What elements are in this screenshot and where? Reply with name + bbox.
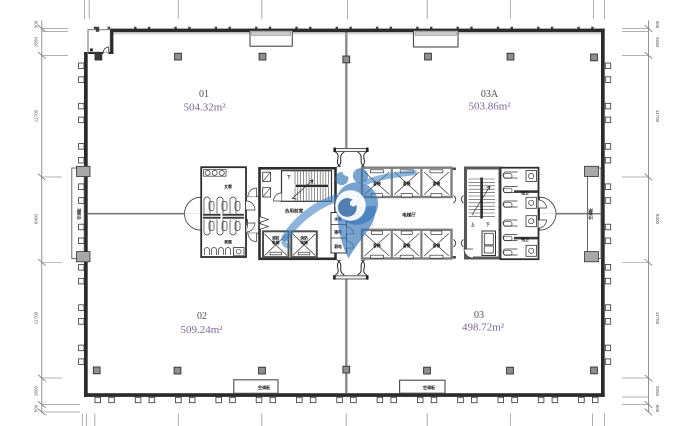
svg-text:电梯厅: 电梯厅 — [402, 212, 416, 219]
svg-text:空调板: 空调板 — [423, 384, 436, 390]
svg-text:509.24m²: 509.24m² — [180, 324, 223, 336]
svg-text:残卫: 残卫 — [520, 191, 529, 196]
svg-text:男厕: 男厕 — [223, 240, 232, 245]
svg-text:空调板: 空调板 — [77, 208, 82, 220]
svg-text:客梯: 客梯 — [402, 181, 411, 186]
svg-text:02: 02 — [197, 311, 207, 322]
svg-text:残卫: 残卫 — [520, 237, 529, 242]
svg-text:消防: 消防 — [300, 236, 308, 241]
svg-text:11700: 11700 — [655, 312, 660, 325]
svg-text:03A: 03A — [481, 89, 499, 100]
svg-text:2650: 2650 — [34, 36, 39, 47]
svg-text:503.86m²: 503.86m² — [468, 101, 511, 113]
svg-text:01: 01 — [199, 89, 209, 100]
svg-text:2650: 2650 — [34, 385, 39, 396]
svg-text:客梯: 客梯 — [402, 243, 411, 248]
svg-text:消防: 消防 — [272, 236, 280, 241]
svg-text:下: 下 — [486, 222, 490, 227]
svg-text:电梯: 电梯 — [272, 240, 280, 245]
svg-text:300: 300 — [655, 21, 660, 29]
svg-text:2650: 2650 — [655, 386, 660, 397]
svg-text:11700: 11700 — [34, 109, 39, 122]
svg-text:11700: 11700 — [34, 311, 39, 324]
svg-text:空调板: 空调板 — [588, 208, 593, 220]
svg-text:500: 500 — [655, 405, 660, 413]
svg-text:客梯: 客梯 — [372, 243, 381, 248]
svg-text:空调板: 空调板 — [258, 384, 271, 390]
svg-text:11700: 11700 — [655, 110, 660, 123]
svg-text:500: 500 — [34, 404, 39, 412]
svg-text:300: 300 — [34, 20, 39, 28]
svg-text:合用前室: 合用前室 — [285, 208, 304, 215]
svg-text:498.72m²: 498.72m² — [462, 322, 505, 334]
svg-text:弱电: 弱电 — [334, 244, 342, 249]
svg-text:客梯: 客梯 — [432, 181, 441, 186]
svg-text:下: 下 — [287, 175, 291, 180]
svg-text:电梯: 电梯 — [300, 240, 308, 245]
svg-text:8400: 8400 — [34, 213, 39, 224]
svg-text:03: 03 — [474, 310, 484, 321]
svg-text:上: 上 — [471, 222, 475, 227]
svg-text:504.32m²: 504.32m² — [183, 102, 226, 114]
svg-text:客梯: 客梯 — [432, 243, 441, 248]
svg-text:女厕: 女厕 — [224, 184, 232, 189]
svg-text:8400: 8400 — [655, 214, 660, 225]
svg-text:2650: 2650 — [655, 37, 660, 48]
